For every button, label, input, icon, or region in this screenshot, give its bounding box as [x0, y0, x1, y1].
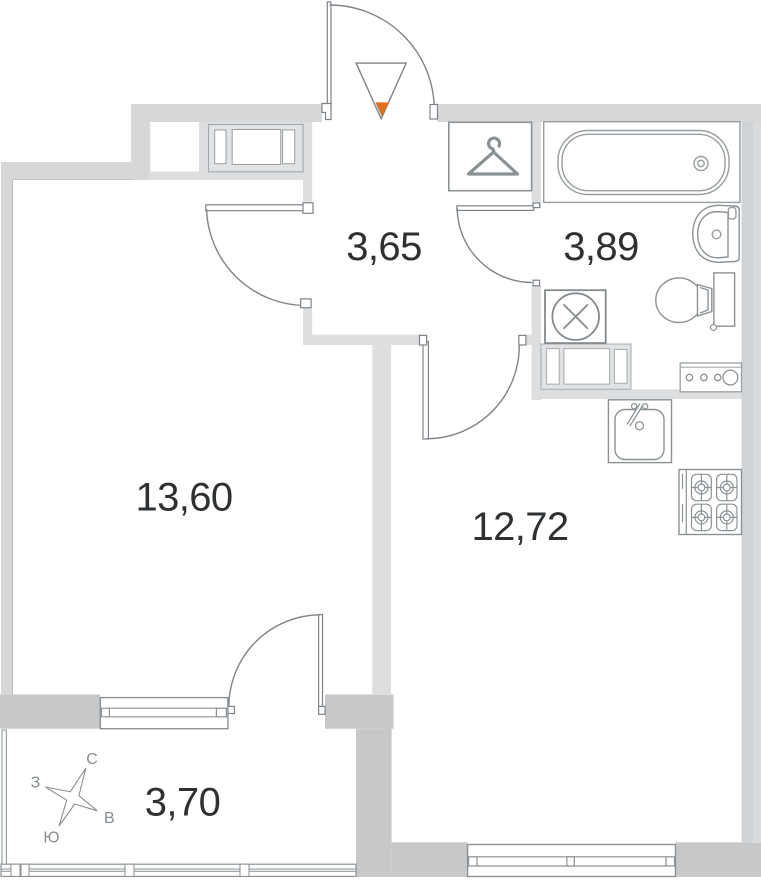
svg-text:3,89: 3,89 [563, 225, 638, 269]
svg-text:В: В [104, 810, 115, 827]
svg-text:С: С [86, 751, 98, 768]
svg-text:З: З [31, 775, 41, 792]
svg-text:3,65: 3,65 [346, 225, 421, 269]
svg-text:13,60: 13,60 [135, 476, 232, 520]
svg-text:Ю: Ю [43, 830, 59, 847]
svg-text:12,72: 12,72 [471, 505, 568, 549]
svg-text:3,70: 3,70 [145, 781, 220, 825]
